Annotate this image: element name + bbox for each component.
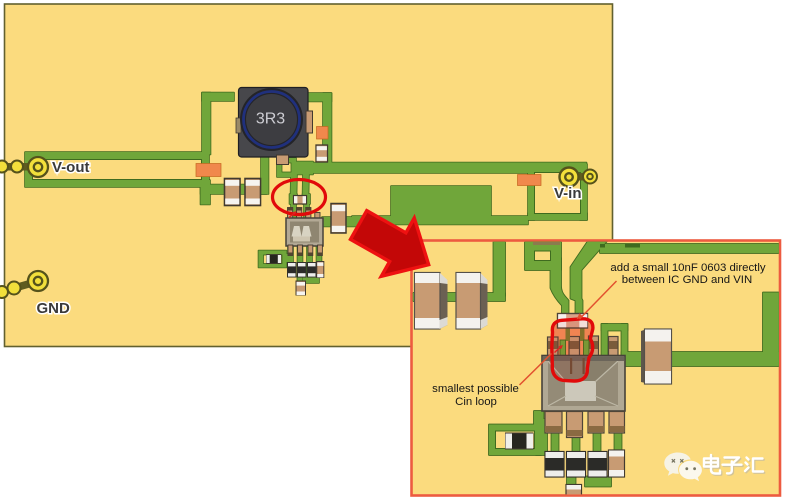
svg-text:3R3: 3R3	[256, 111, 285, 128]
svg-text:V-in: V-in	[554, 185, 582, 202]
svg-text:smallest possible: smallest possible	[432, 383, 519, 395]
svg-text:add a small 10nF 0603 directly: add a small 10nF 0603 directly	[610, 262, 765, 274]
svg-text:Cin loop: Cin loop	[455, 396, 497, 408]
svg-text:GND: GND	[37, 300, 71, 317]
svg-text:V-out: V-out	[52, 159, 90, 176]
svg-text:between IC GND and VIN: between IC GND and VIN	[622, 274, 752, 286]
